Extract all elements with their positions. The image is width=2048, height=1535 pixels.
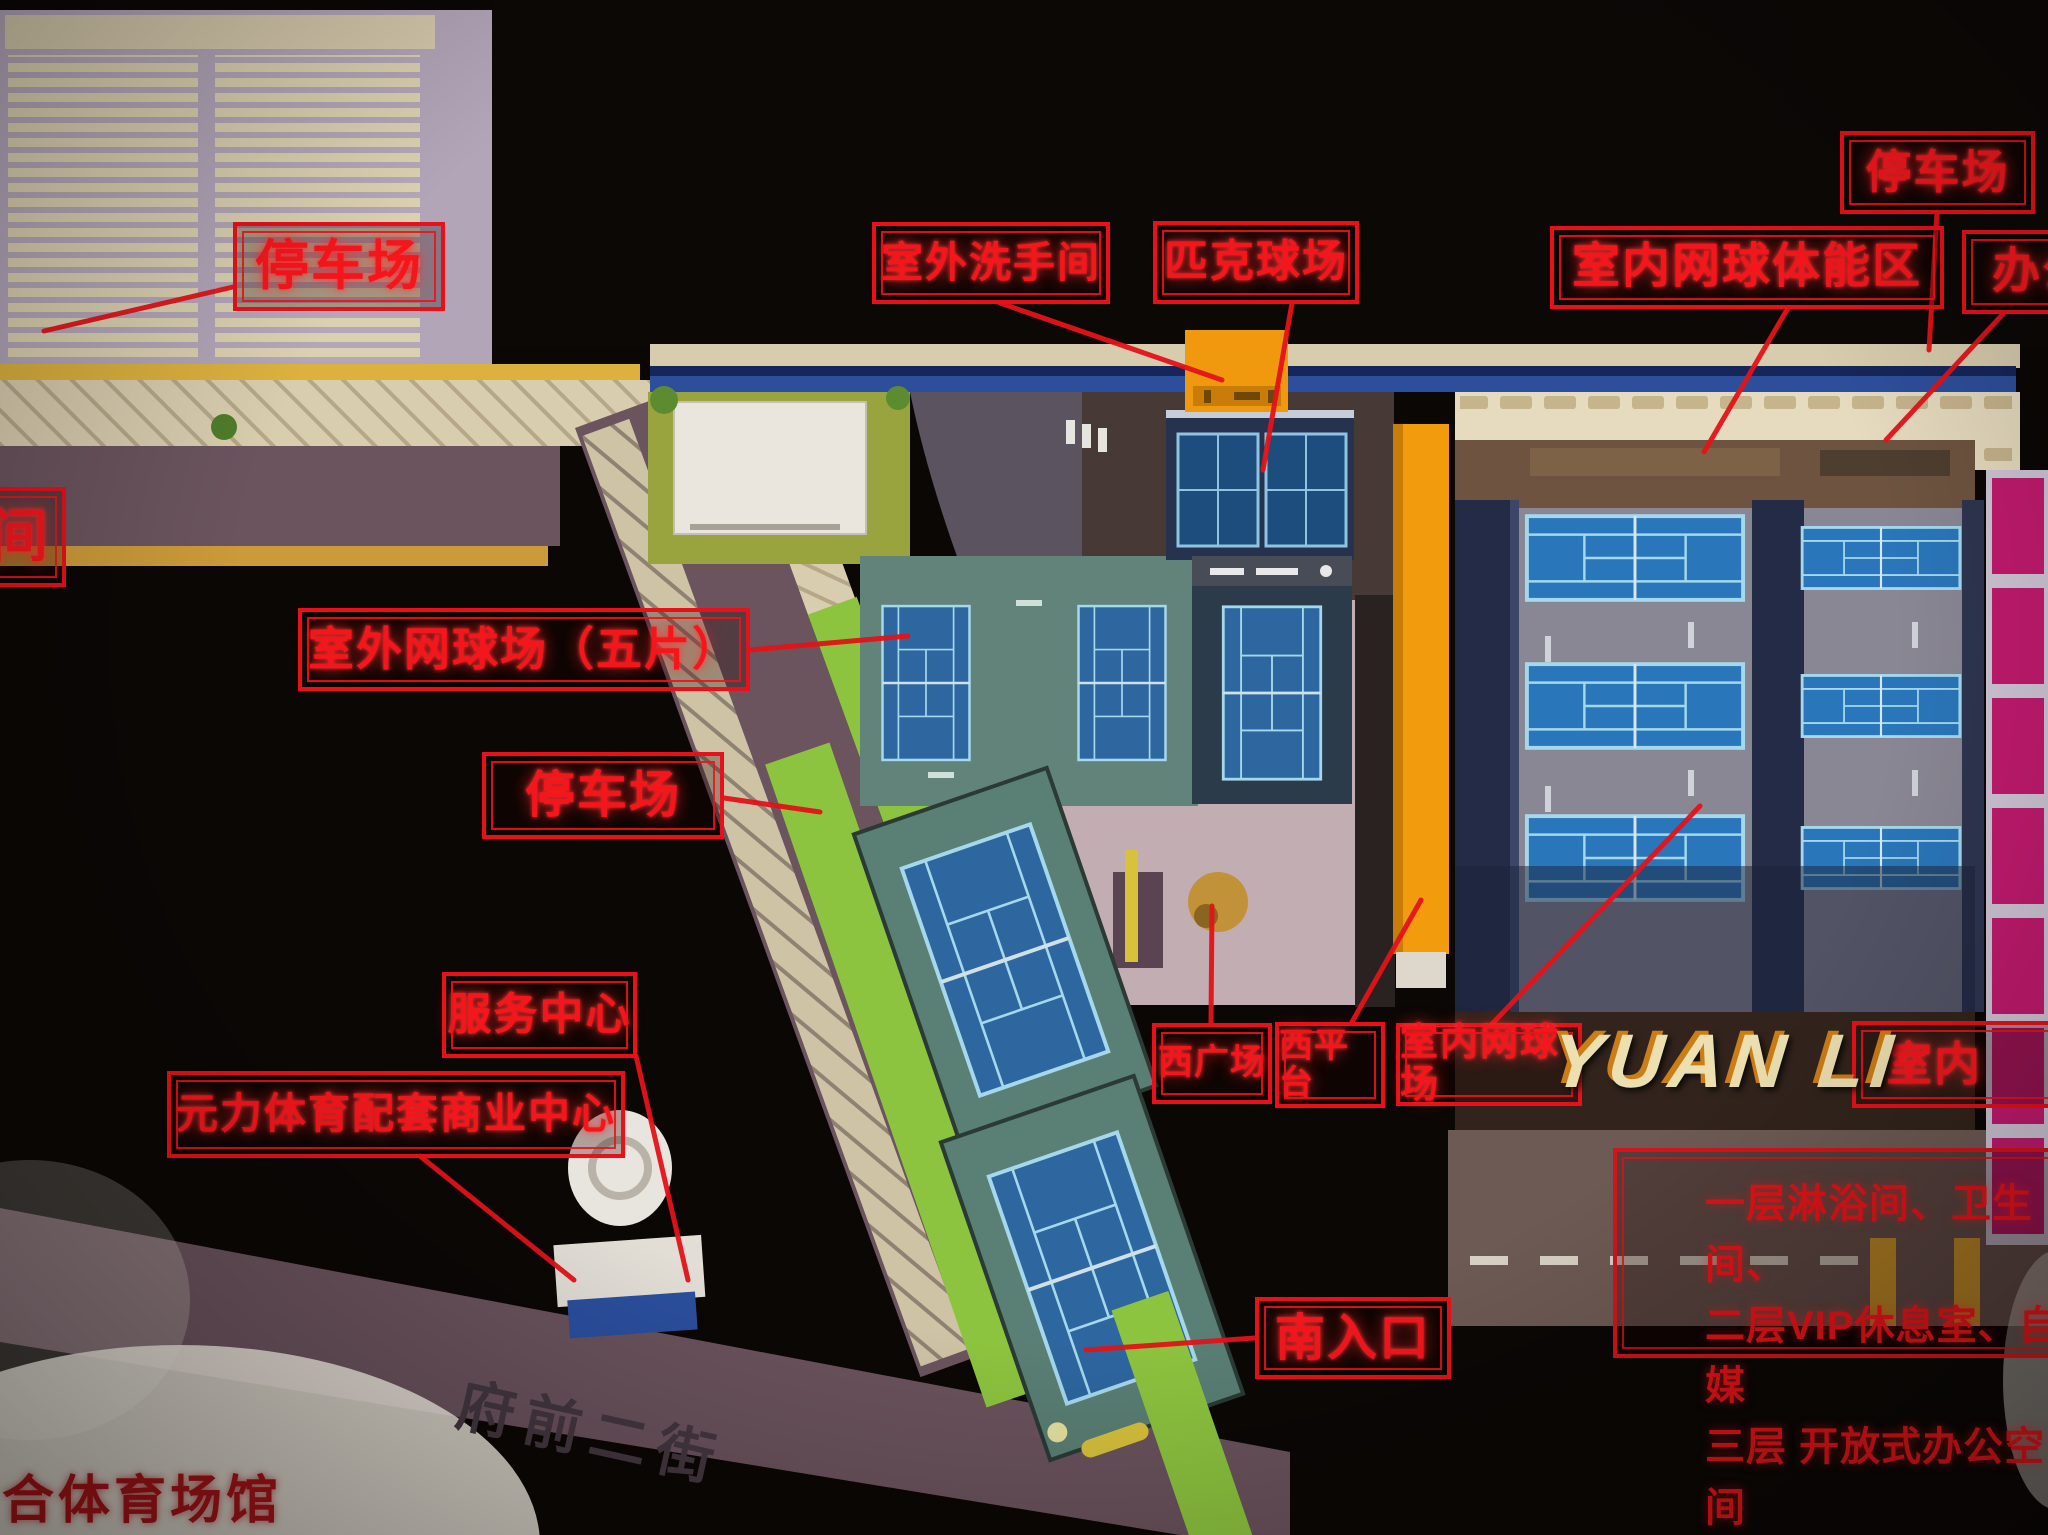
- canopy-stripe: [650, 376, 2016, 392]
- building-sign-yuanli: YUAN LI: [1547, 1018, 1956, 1105]
- north-walk: [650, 344, 2020, 368]
- pickleball-courts: [1166, 410, 1354, 560]
- site-map-photo: 停车场 室外洗手间 匹克球场 室内网球体能区 停车场 办公 室外网球场（五片） …: [0, 0, 2048, 1535]
- label-indoor-tennis-fitness: 室内网球体能区: [1550, 226, 1944, 309]
- label-west-platform: 西平台: [1275, 1022, 1385, 1108]
- label-outdoor-tennis-courts: 室外网球场（五片）: [298, 608, 750, 691]
- enclosed-tennis-court: [1192, 556, 1352, 804]
- label-pickleball-court: 匹克球场: [1153, 221, 1359, 304]
- sidewalk-hatch: [0, 380, 655, 446]
- label-parking-top-right: 停车场: [1840, 131, 2035, 214]
- info-line-3: 三层 开放式办公空间: [1705, 1417, 2048, 1535]
- canopy-stripe-dark: [650, 366, 2016, 376]
- info-line-2: 二层VIP休息室、自媒: [1705, 1296, 2048, 1418]
- road-edge-band: [0, 546, 548, 566]
- label-edge-cutoff: 间: [0, 487, 66, 587]
- label-south-entrance: 南入口: [1255, 1297, 1451, 1379]
- bottom-left-partial-text: 合体育场馆: [2, 1458, 282, 1533]
- label-commercial-center: 元力体育配套商业中心: [167, 1071, 625, 1158]
- tree: [211, 414, 237, 440]
- label-west-plaza: 西广场: [1152, 1023, 1272, 1104]
- label-parking-top-left: 停车场: [233, 222, 445, 311]
- outdoor-tennis-north: [860, 556, 1198, 806]
- leader-west-plaza: [1211, 906, 1212, 1023]
- curb-line: [0, 364, 640, 380]
- north-road: [0, 446, 560, 546]
- plaza-edge-shadow: [1355, 595, 1395, 1007]
- floor-info-box: 一层淋浴间、卫生间、 二层VIP休息室、自媒 三层 开放式办公空间: [1613, 1148, 2048, 1358]
- restroom-area: [648, 386, 910, 564]
- label-parking-mid: 停车场: [482, 752, 724, 839]
- info-line-1: 一层淋浴间、卫生间、: [1705, 1174, 2048, 1296]
- label-office-cutoff: 办公: [1962, 230, 2048, 314]
- service-center-building: [553, 1235, 707, 1339]
- magenta-courts-strip: [1986, 470, 2048, 1245]
- label-service-center: 服务中心: [442, 972, 637, 1058]
- parking-structure-northwest: [0, 10, 492, 372]
- label-outdoor-restroom: 室外洗手间: [872, 222, 1110, 304]
